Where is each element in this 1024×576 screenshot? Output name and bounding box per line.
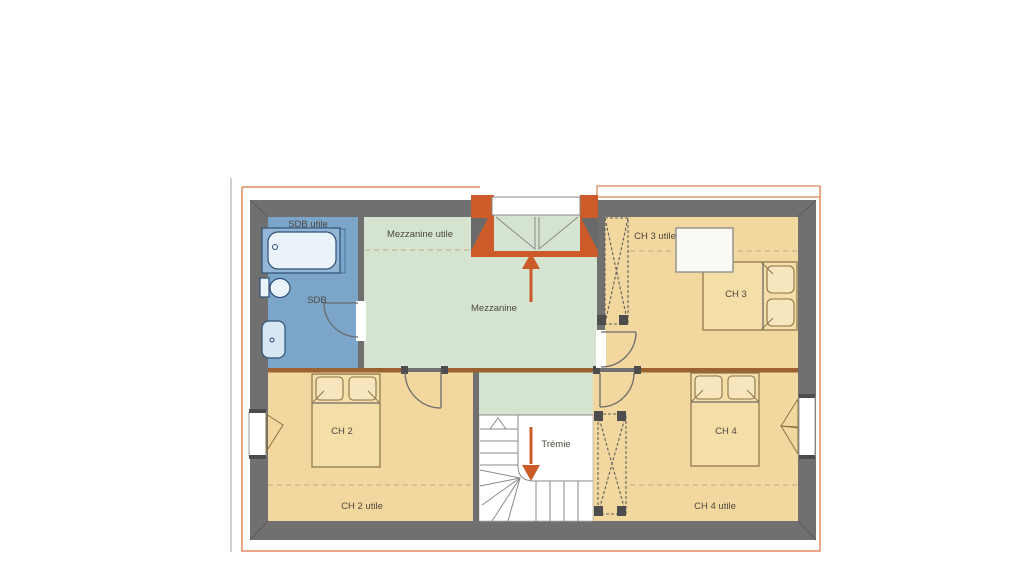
floor-plan-drawing: SDB utile Mezzanine utile SDB Mezzanine …	[0, 0, 1024, 576]
door-jamb	[634, 366, 641, 374]
label-mezzanine: Mezzanine	[471, 303, 517, 314]
dormer-entry	[471, 195, 598, 257]
dormer-sill	[471, 251, 598, 257]
mid-wall-right	[634, 368, 798, 373]
bathtub-icon	[262, 228, 340, 273]
wall-sdb-mezzanine-upper	[358, 217, 364, 302]
wall-ch2-stairs	[473, 372, 479, 521]
dormer-floor	[494, 215, 580, 252]
label-sdb-utile: SDB utile	[288, 219, 328, 230]
wall-mezzanine-ch3	[597, 217, 605, 330]
label-ch2: CH 2	[331, 426, 353, 437]
ch4-double-bed-icon	[691, 373, 759, 466]
washbasin-icon	[262, 321, 285, 358]
label-ch3-utile: CH 3 utile	[634, 231, 676, 242]
label-mezzanine-utile: Mezzanine utile	[387, 229, 453, 240]
label-ch4-utile: CH 4 utile	[694, 501, 736, 512]
mid-wall-left	[268, 368, 408, 373]
wall-sdb-mezzanine-lower	[358, 340, 364, 368]
label-ch4: CH 4	[715, 426, 737, 437]
roof-outline-top-right-band	[597, 186, 820, 197]
skylight	[676, 228, 733, 272]
toilet-icon	[260, 278, 290, 298]
door-jamb	[441, 366, 448, 374]
label-ch2-utile: CH 2 utile	[341, 501, 383, 512]
floor-plan: SDB utile Mezzanine utile SDB Mezzanine …	[0, 0, 1024, 576]
french-window	[492, 197, 580, 215]
label-sdb: SDB	[307, 295, 327, 306]
mezzanine-landing	[473, 368, 593, 415]
label-tremie: Trémie	[541, 439, 570, 450]
mid-wall-center	[441, 368, 600, 373]
label-ch3: CH 3	[725, 289, 747, 300]
ch2-double-bed-icon	[312, 374, 380, 467]
